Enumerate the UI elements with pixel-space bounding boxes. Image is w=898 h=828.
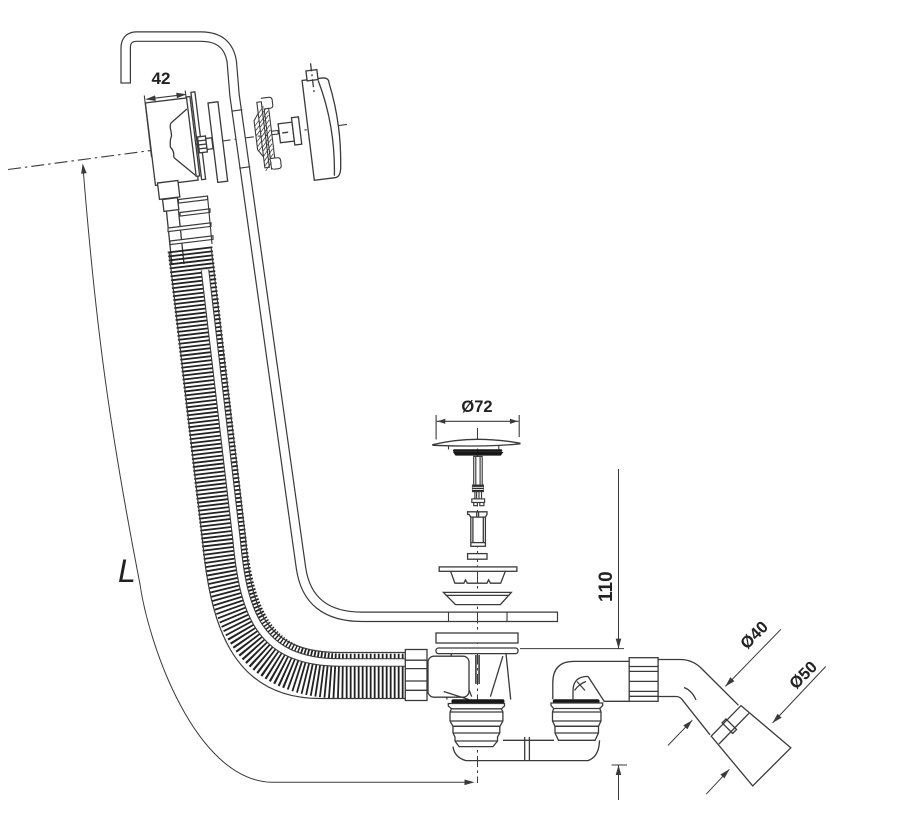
svg-text:Ø72: Ø72 — [461, 398, 492, 416]
svg-text:42: 42 — [152, 69, 171, 88]
svg-text:110: 110 — [596, 571, 617, 602]
svg-text:L: L — [118, 553, 136, 589]
